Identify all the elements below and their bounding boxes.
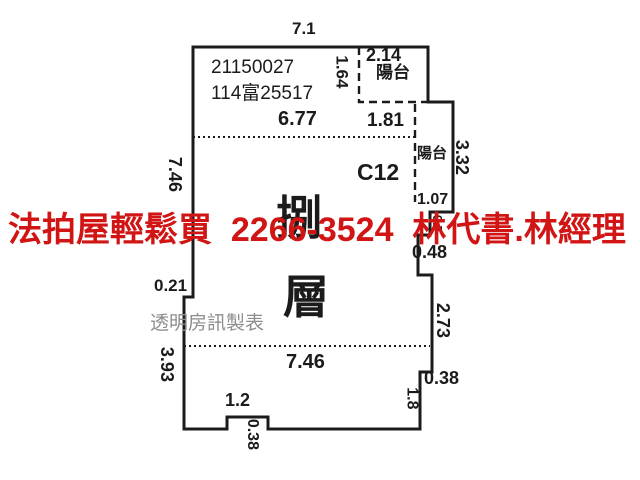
dim-top-width: 7.1 — [292, 20, 316, 38]
watermark-text: 透明房訊製表 — [150, 314, 264, 334]
dim-balcony-top-depth: 1.64 — [333, 55, 351, 88]
dim-notch-width: 1.2 — [225, 391, 250, 410]
floor-label-char2: 層 — [283, 273, 329, 321]
floorplan-canvas: 7.1 21150027 114富25517 2.14 陽台 1.64 6.77… — [0, 0, 640, 480]
balcony-right-label: 陽台 — [417, 146, 447, 162]
dim-balcony-top-inner-width: 1.81 — [367, 111, 404, 131]
balcony-top-label: 陽台 — [376, 64, 410, 82]
dim-right-bottom-height: 1.8 — [403, 387, 420, 409]
dim-interior-top-width: 6.77 — [278, 109, 317, 130]
ad-overlay-text: 法拍屋輕鬆買 2266-3524 林代書.林經理 — [8, 213, 626, 249]
dim-left-height-upper: 7.46 — [165, 157, 184, 192]
dim-balcony-right-height: 3.32 — [452, 140, 471, 175]
dim-right-height-lower: 2.73 — [433, 303, 452, 338]
unit-label: C12 — [357, 160, 399, 184]
dim-interior-bottom-width: 7.46 — [286, 352, 325, 373]
dim-balcony-right-bottom-width: 1.07 — [417, 192, 448, 209]
dim-left-jog: 0.21 — [154, 277, 187, 295]
dim-notch-depth: 0.38 — [243, 419, 260, 450]
case-reference: 114富25517 — [211, 84, 313, 104]
dim-left-height-lower: 3.93 — [157, 347, 176, 382]
case-number: 21150027 — [211, 58, 294, 78]
dim-right-bottom-step: 0.38 — [424, 369, 459, 388]
